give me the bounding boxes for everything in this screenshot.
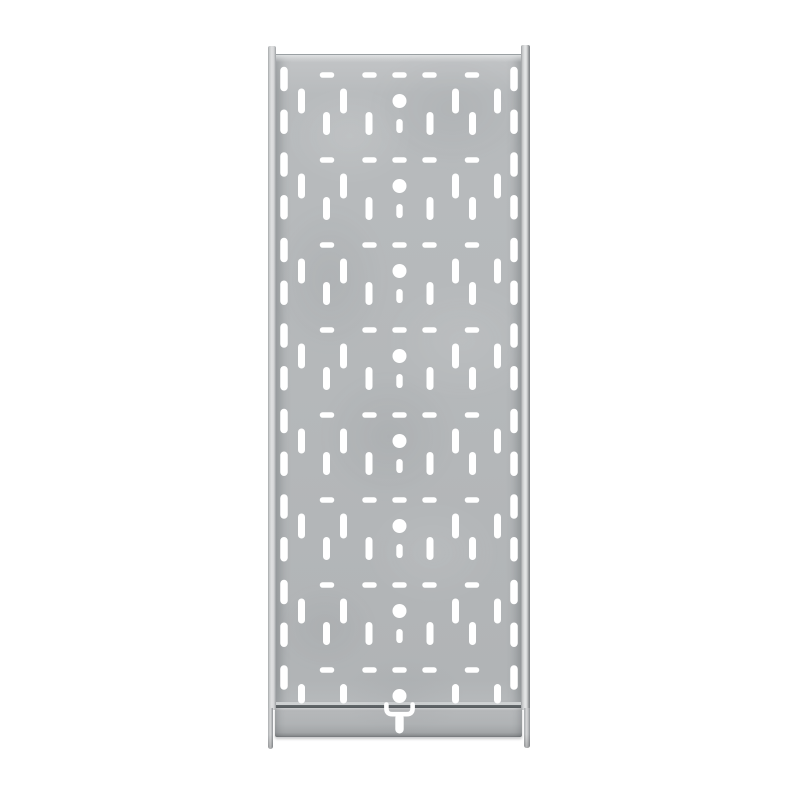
tray-perforated-panel [276,54,522,706]
panel-top-fold-highlight [276,55,522,62]
product-photo-canvas [0,0,800,800]
end-connector-flange [275,708,522,738]
coupler-tab-right [524,708,530,748]
side-rail-right [521,45,530,710]
coupler-tab-left [268,708,274,749]
side-rail-left [268,46,276,710]
